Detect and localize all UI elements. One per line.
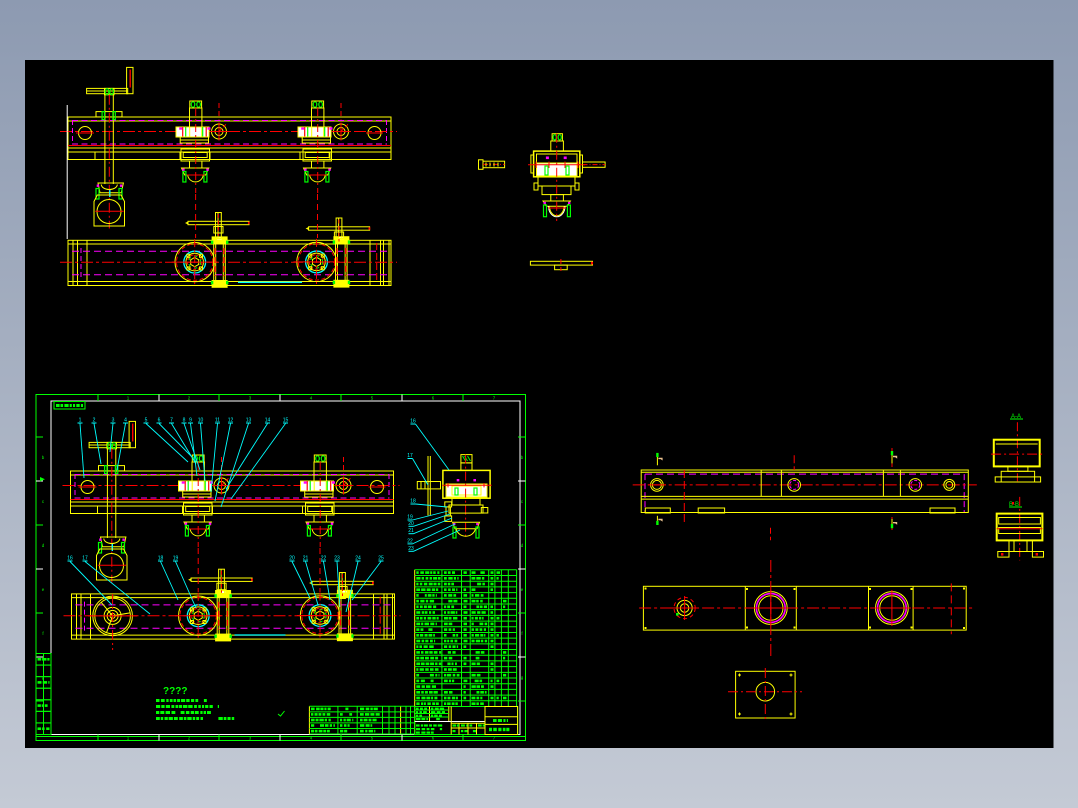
svg-text:????: ???? — [163, 686, 187, 697]
